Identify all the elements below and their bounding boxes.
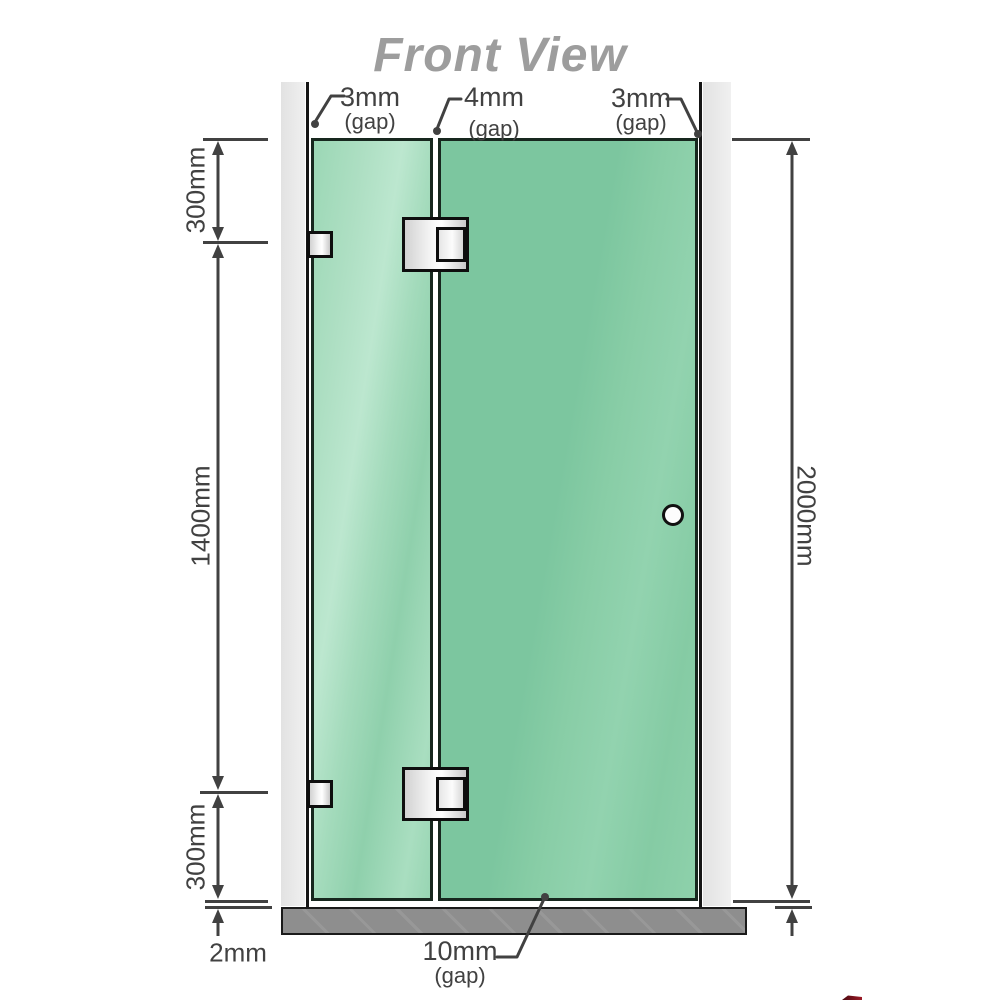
right-dimension-chain [732,140,812,937]
dimension-lines-overlay [0,0,1000,1000]
left-dimension-chain [200,140,272,937]
gap-leader-lines [315,96,697,957]
gap-leader-dots [311,120,702,901]
front-view-diagram: Front View [0,0,1000,1000]
